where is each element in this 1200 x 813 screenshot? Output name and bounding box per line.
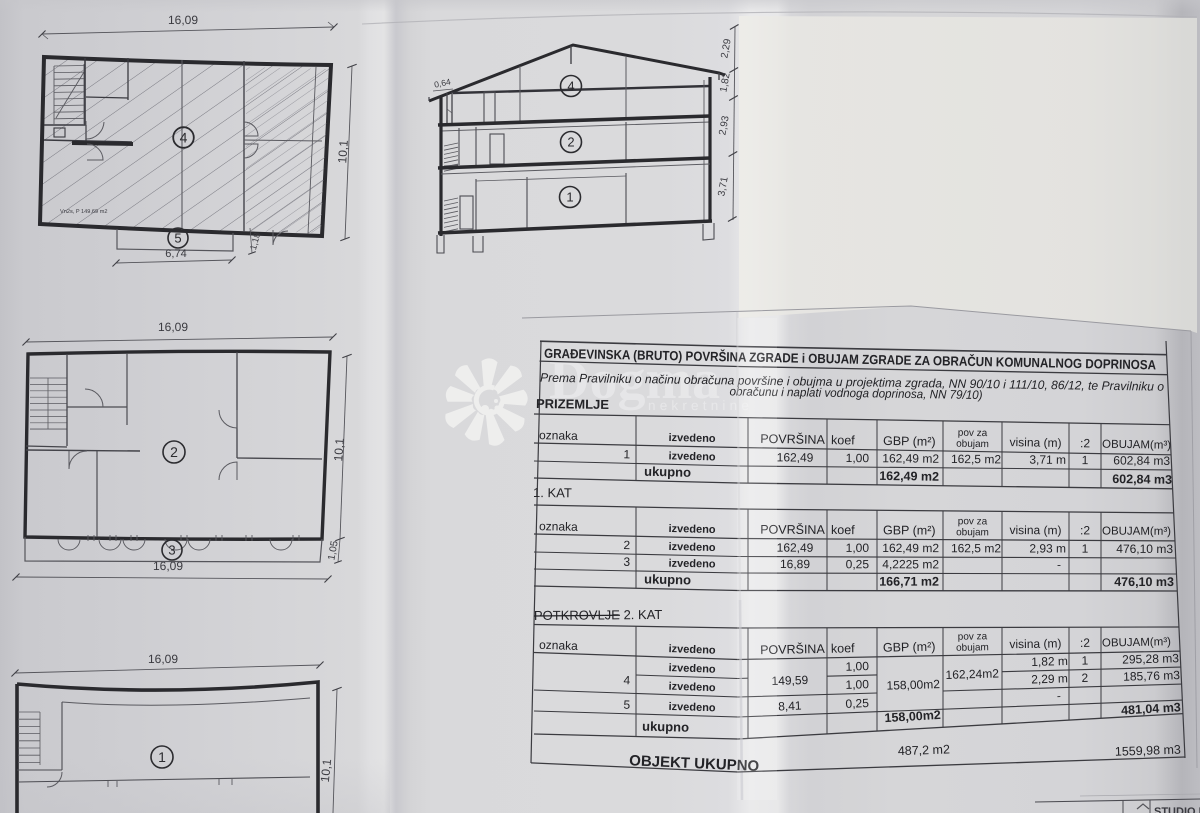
svg-text:STUDIO KOP: STUDIO KOP bbox=[1154, 806, 1200, 813]
svg-text:1559,98 m3: 1559,98 m3 bbox=[1115, 743, 1182, 759]
svg-text:-: - bbox=[1057, 558, 1061, 572]
svg-text:16,89: 16,89 bbox=[780, 557, 810, 571]
svg-text:0,25: 0,25 bbox=[845, 696, 869, 711]
svg-text:1: 1 bbox=[1081, 654, 1088, 668]
svg-text:295,28 m3: 295,28 m3 bbox=[1122, 651, 1179, 666]
svg-text:2: 2 bbox=[567, 135, 574, 150]
svg-text:GBP (m²): GBP (m²) bbox=[883, 523, 936, 537]
svg-text:1: 1 bbox=[566, 190, 573, 205]
svg-text:izvedeno: izvedeno bbox=[668, 681, 716, 695]
svg-text:visina (m): visina (m) bbox=[1009, 636, 1061, 651]
svg-text:162,24m2: 162,24m2 bbox=[945, 666, 999, 682]
svg-text:izvedeno: izvedeno bbox=[668, 432, 716, 445]
svg-text:obujam: obujam bbox=[956, 642, 989, 654]
svg-text:16,09: 16,09 bbox=[148, 652, 178, 666]
svg-text:10,1: 10,1 bbox=[318, 758, 334, 783]
svg-text:izvedeno: izvedeno bbox=[668, 662, 716, 676]
svg-text::2: :2 bbox=[1080, 636, 1091, 650]
svg-text:1: 1 bbox=[623, 447, 630, 461]
svg-text:158,00m2: 158,00m2 bbox=[886, 677, 940, 693]
svg-text:ukupno: ukupno bbox=[642, 719, 689, 735]
svg-text:GBP (m²): GBP (m²) bbox=[883, 640, 936, 655]
svg-text:162,5 m2: 162,5 m2 bbox=[951, 541, 1001, 555]
svg-text:1,00: 1,00 bbox=[845, 659, 869, 674]
svg-text:ukupno: ukupno bbox=[644, 464, 691, 480]
svg-text:476,10 m3: 476,10 m3 bbox=[1114, 575, 1174, 589]
svg-text:602,84 m3: 602,84 m3 bbox=[1112, 472, 1172, 487]
svg-text:visina (m): visina (m) bbox=[1009, 435, 1061, 450]
svg-text:0,25: 0,25 bbox=[846, 557, 870, 571]
svg-text::2: :2 bbox=[1080, 523, 1090, 537]
svg-text:oznaka: oznaka bbox=[539, 428, 578, 443]
svg-text:izvedeno: izvedeno bbox=[668, 701, 716, 714]
svg-text:185,76 m3: 185,76 m3 bbox=[1123, 668, 1180, 684]
svg-text:6,74: 6,74 bbox=[165, 248, 186, 260]
svg-text:pov za: pov za bbox=[958, 516, 988, 527]
svg-text:izvedeno: izvedeno bbox=[668, 541, 716, 554]
svg-text:PRIZEMLJE: PRIZEMLJE bbox=[536, 396, 609, 412]
svg-text:pov za: pov za bbox=[958, 428, 988, 439]
svg-text:166,71 m2: 166,71 m2 bbox=[879, 575, 939, 589]
svg-text:2: 2 bbox=[623, 538, 630, 552]
svg-text:POTKROVLJE 2. KAT: POTKROVLJE 2. KAT bbox=[534, 607, 663, 623]
svg-text:koef: koef bbox=[831, 641, 855, 655]
svg-text:5: 5 bbox=[623, 698, 630, 712]
svg-text:izvedeno: izvedeno bbox=[668, 643, 716, 657]
svg-text:oznaka: oznaka bbox=[539, 638, 578, 653]
svg-text:4: 4 bbox=[623, 673, 630, 687]
svg-text:izvedeno: izvedeno bbox=[668, 523, 716, 536]
svg-text:3,71 m: 3,71 m bbox=[1029, 453, 1066, 467]
svg-text:4: 4 bbox=[180, 130, 188, 146]
svg-text:162,49 m2: 162,49 m2 bbox=[879, 469, 939, 484]
svg-text:1,00: 1,00 bbox=[845, 677, 869, 692]
svg-text:izvedeno: izvedeno bbox=[668, 450, 716, 463]
svg-text:OBUJAM(m³): OBUJAM(m³) bbox=[1102, 526, 1171, 538]
svg-text:162,49: 162,49 bbox=[777, 450, 814, 464]
svg-text:koef: koef bbox=[831, 433, 855, 447]
svg-text:2,29 m: 2,29 m bbox=[1031, 671, 1068, 686]
svg-text:4: 4 bbox=[567, 79, 574, 94]
svg-text:5: 5 bbox=[174, 231, 181, 246]
svg-text:16,09: 16,09 bbox=[158, 320, 188, 334]
svg-text:3: 3 bbox=[623, 555, 630, 569]
svg-text:OBUJAM(m³): OBUJAM(m³) bbox=[1102, 439, 1171, 452]
svg-text:obujam: obujam bbox=[956, 439, 989, 451]
svg-text:1,00: 1,00 bbox=[846, 451, 870, 465]
svg-text:2: 2 bbox=[1081, 671, 1088, 685]
svg-text:oznaka: oznaka bbox=[539, 519, 578, 534]
svg-text:-: - bbox=[1057, 689, 1062, 703]
svg-text:2,93 m: 2,93 m bbox=[1029, 541, 1066, 555]
svg-text:1. KAT: 1. KAT bbox=[533, 485, 572, 500]
svg-text:Vn2s, P 149,69 m2: Vn2s, P 149,69 m2 bbox=[60, 209, 107, 215]
svg-text:162,49 m2: 162,49 m2 bbox=[882, 451, 939, 466]
svg-text:1,00: 1,00 bbox=[846, 541, 870, 555]
svg-text:476,10 m3: 476,10 m3 bbox=[1116, 542, 1173, 556]
svg-text:koef: koef bbox=[831, 523, 855, 537]
svg-text:OBUJAM(m³): OBUJAM(m³) bbox=[1102, 636, 1171, 649]
svg-text:10,1: 10,1 bbox=[331, 437, 347, 462]
svg-text:GBP (m²): GBP (m²) bbox=[883, 434, 936, 449]
svg-text:8,41: 8,41 bbox=[778, 699, 802, 714]
svg-text:obujam: obujam bbox=[956, 527, 989, 538]
svg-text:4,2225 m2: 4,2225 m2 bbox=[882, 557, 939, 571]
svg-text:2: 2 bbox=[170, 444, 178, 460]
svg-text:602,84 m3: 602,84 m3 bbox=[1113, 453, 1170, 468]
svg-text:16,09: 16,09 bbox=[168, 13, 198, 27]
svg-text::2: :2 bbox=[1080, 436, 1091, 450]
svg-text:162,5 m2: 162,5 m2 bbox=[951, 452, 1001, 466]
svg-text:pov za: pov za bbox=[958, 631, 988, 643]
svg-text:162,49: 162,49 bbox=[777, 541, 814, 555]
svg-text:162,49 m2: 162,49 m2 bbox=[882, 541, 939, 555]
svg-text:1: 1 bbox=[1082, 542, 1089, 556]
svg-text:3: 3 bbox=[168, 543, 175, 558]
svg-text:1: 1 bbox=[158, 749, 166, 765]
svg-text:487,2 m2: 487,2 m2 bbox=[898, 742, 951, 758]
svg-text:ukupno: ukupno bbox=[644, 571, 691, 587]
svg-text:1: 1 bbox=[1082, 453, 1089, 467]
svg-text:visina (m): visina (m) bbox=[1009, 523, 1061, 537]
svg-text:1,82 m: 1,82 m bbox=[1031, 654, 1068, 669]
svg-text:izvedeno: izvedeno bbox=[668, 558, 716, 571]
